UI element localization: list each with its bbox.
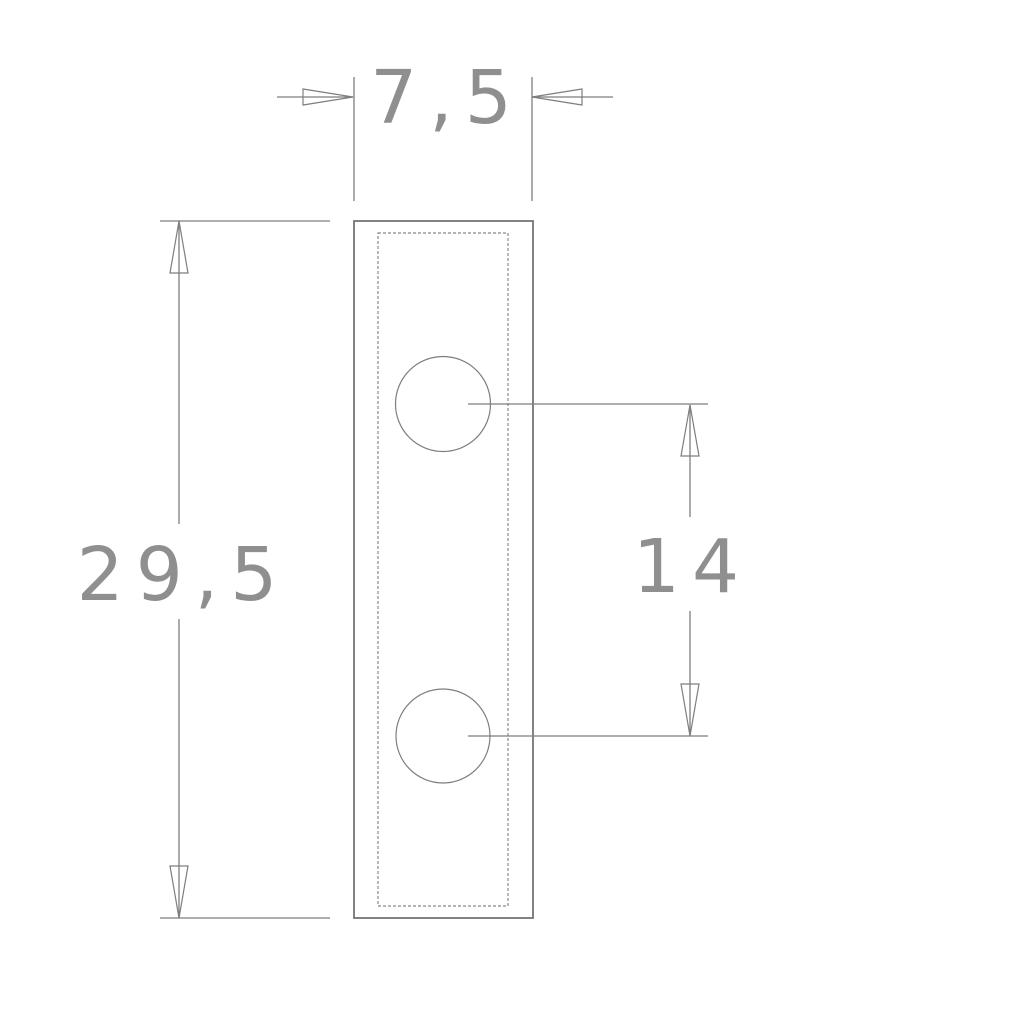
plate-part — [354, 221, 533, 918]
drawing-sheet: 7,5 29,5 14 — [0, 0, 1012, 1024]
spacing-dim-label: 14 — [633, 524, 751, 610]
drawing-canvas: 7,5 29,5 14 — [0, 0, 1012, 1024]
width-dimension: 7,5 — [277, 55, 613, 201]
hole-spacing-dimension: 14 — [468, 404, 751, 736]
height-dimension: 29,5 — [77, 221, 330, 918]
height-dim-label: 29,5 — [77, 532, 290, 618]
plate-outline — [354, 221, 533, 918]
width-dim-label: 7,5 — [370, 55, 524, 141]
plate-inner-contour — [378, 233, 508, 906]
